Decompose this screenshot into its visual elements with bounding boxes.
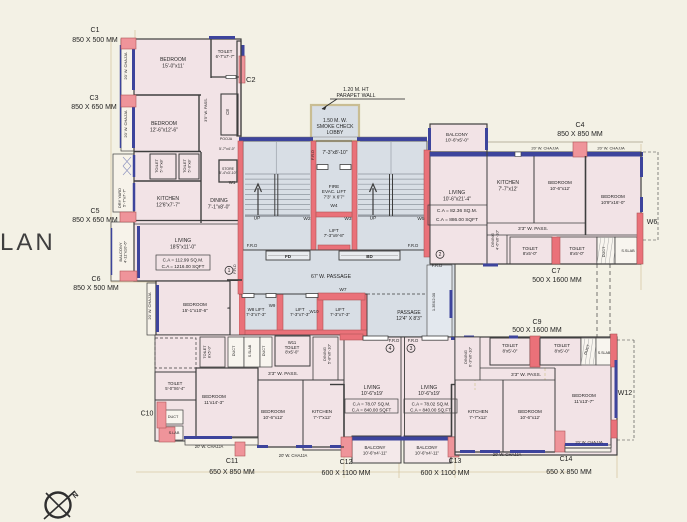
svg-text:C.A = 840.00 SQFT: C.A = 840.00 SQFT bbox=[352, 408, 392, 413]
svg-text:UP: UP bbox=[370, 216, 377, 222]
svg-text:8'x5'-0": 8'x5'-0" bbox=[523, 251, 538, 256]
svg-text:C9: C9 bbox=[533, 319, 542, 326]
svg-text:20' W. CHAJJA: 20' W. CHAJJA bbox=[123, 52, 128, 80]
svg-text:6'-7"x7'-7": 6'-7"x7'-7" bbox=[216, 54, 235, 59]
svg-text:18'5"x11'-0": 18'5"x11'-0" bbox=[170, 245, 196, 251]
svg-text:C4: C4 bbox=[576, 122, 585, 129]
svg-text:12'4" X 8'3": 12'4" X 8'3" bbox=[396, 316, 422, 322]
svg-text:W5: W5 bbox=[417, 216, 425, 222]
svg-text:F.R.D: F.R.D bbox=[233, 264, 237, 274]
svg-text:FD: FD bbox=[285, 254, 292, 259]
svg-text:BEDROOM: BEDROOM bbox=[518, 409, 542, 414]
svg-text:UP: UP bbox=[254, 216, 261, 222]
svg-text:W9: W9 bbox=[269, 303, 276, 308]
svg-text:W7: W7 bbox=[339, 287, 347, 293]
svg-text:DUCT: DUCT bbox=[232, 345, 236, 356]
svg-text:3'3" W. PASS.: 3'3" W. PASS. bbox=[511, 372, 541, 378]
svg-text:DUCT: DUCT bbox=[602, 246, 606, 257]
svg-text:S.SLAB: S.SLAB bbox=[598, 351, 611, 355]
svg-text:10'-6"x4'-11": 10'-6"x4'-11" bbox=[415, 451, 440, 456]
svg-text:12'-6"x12'-6": 12'-6"x12'-6" bbox=[150, 128, 178, 134]
svg-text:W10: W10 bbox=[309, 309, 319, 314]
svg-text:8'x5'-0": 8'x5'-0" bbox=[570, 251, 585, 256]
svg-text:5'-0"x8': 5'-0"x8' bbox=[159, 159, 164, 172]
svg-text:3'5" W. PASS.: 3'5" W. PASS. bbox=[204, 98, 208, 122]
svg-text:KITCHEN: KITCHEN bbox=[157, 196, 179, 202]
svg-text:3'3" W. PASS.: 3'3" W. PASS. bbox=[518, 226, 548, 232]
svg-text:F.R.D: F.R.D bbox=[408, 243, 418, 248]
svg-text:850 X 850 MM: 850 X 850 MM bbox=[557, 131, 603, 138]
svg-text:20' W. CHAJJA: 20' W. CHAJJA bbox=[531, 146, 559, 151]
svg-text:20' W. CHAJJA: 20' W. CHAJJA bbox=[575, 440, 603, 445]
svg-text:1.35X2.00: 1.35X2.00 bbox=[431, 292, 436, 311]
svg-text:S.SLAB: S.SLAB bbox=[621, 249, 635, 253]
svg-text:LIVING: LIVING bbox=[175, 238, 192, 244]
svg-text:11'x13'-7": 11'x13'-7" bbox=[574, 399, 594, 404]
svg-text:W2: W2 bbox=[303, 216, 311, 222]
svg-text:10'9"x16'-0": 10'9"x16'-0" bbox=[601, 200, 626, 205]
svg-text:650 X 850 MM: 650 X 850 MM bbox=[546, 469, 592, 476]
svg-text:7'-3"x7'-3": 7'-3"x7'-3" bbox=[290, 312, 310, 317]
svg-text:C11: C11 bbox=[226, 458, 238, 465]
svg-text:W6: W6 bbox=[647, 219, 658, 226]
svg-text:KITCHEN: KITCHEN bbox=[468, 409, 488, 414]
svg-text:F.R.D: F.R.D bbox=[310, 150, 315, 160]
svg-text:C2: C2 bbox=[246, 75, 256, 84]
svg-text:10'-6"x5'-0": 10'-6"x5'-0" bbox=[445, 138, 469, 143]
svg-text:DUCT: DUCT bbox=[168, 415, 179, 419]
svg-text:4'-6"x6'-10": 4'-6"x6'-10" bbox=[495, 229, 500, 250]
svg-text:5'-7"x4'-0": 5'-7"x4'-0" bbox=[219, 147, 236, 151]
svg-text:5'-8"x6'-10": 5'-8"x6'-10" bbox=[327, 343, 332, 364]
svg-text:C7: C7 bbox=[552, 268, 561, 275]
svg-text:BEDROOM: BEDROOM bbox=[601, 194, 625, 199]
svg-text:BEDROOM: BEDROOM bbox=[202, 394, 226, 399]
svg-text:7'-3"x9'-8": 7'-3"x9'-8" bbox=[324, 233, 345, 238]
svg-text:15'-0"x11': 15'-0"x11' bbox=[162, 64, 183, 70]
svg-text:6'-3"x6'-10": 6'-3"x6'-10" bbox=[468, 346, 473, 367]
svg-text:20' W. CHAJJA: 20' W. CHAJJA bbox=[123, 110, 128, 138]
svg-text:10'-6"x4'-11": 10'-6"x4'-11" bbox=[363, 451, 388, 456]
svg-text:850 X 500 MM: 850 X 500 MM bbox=[73, 285, 119, 292]
svg-text:LOBBY: LOBBY bbox=[327, 130, 344, 136]
svg-text:500 X 1600 MM: 500 X 1600 MM bbox=[512, 327, 562, 334]
svg-text:C.A = 840.00 SQ.FT: C.A = 840.00 SQ.FT bbox=[410, 408, 451, 413]
svg-text:7'-7"x12': 7'-7"x12' bbox=[313, 415, 331, 420]
svg-text:C6: C6 bbox=[92, 276, 101, 283]
svg-text:5'-0"X6'-4": 5'-0"X6'-4" bbox=[165, 386, 185, 391]
svg-text:12'6"x7'-7": 12'6"x7'-7" bbox=[156, 203, 180, 209]
svg-text:8'x5'-0": 8'x5'-0" bbox=[555, 349, 570, 354]
svg-text:BEDROOM: BEDROOM bbox=[548, 180, 572, 185]
svg-text:F.R.D: F.R.D bbox=[247, 243, 257, 248]
svg-text:PARAPET WALL: PARAPET WALL bbox=[336, 93, 375, 99]
svg-text:10'-6"x19': 10'-6"x19' bbox=[418, 391, 440, 397]
svg-text:DUCT: DUCT bbox=[262, 345, 266, 356]
svg-text:20' W. CHAJJA: 20' W. CHAJJA bbox=[279, 453, 308, 458]
svg-text:4: 4 bbox=[389, 346, 392, 352]
svg-text:KITCHEN: KITCHEN bbox=[497, 180, 519, 186]
svg-text:7'-7"x12': 7'-7"x12' bbox=[469, 415, 487, 420]
svg-text:8'x5'-0": 8'x5'-0" bbox=[207, 345, 211, 358]
svg-text:BEDROOM: BEDROOM bbox=[261, 409, 285, 414]
svg-text:C.A = 1216.00 SQFT: C.A = 1216.00 SQFT bbox=[162, 264, 205, 269]
svg-text:W4: W4 bbox=[330, 203, 338, 209]
svg-text:BALCONY: BALCONY bbox=[417, 445, 438, 450]
svg-text:20' W. CHAJJA: 20' W. CHAJJA bbox=[597, 146, 625, 151]
svg-text:7'-3"x8'-10": 7'-3"x8'-10" bbox=[322, 150, 347, 156]
svg-text:650 X 850 MM: 650 X 850 MM bbox=[209, 469, 255, 476]
svg-text:LAN: LAN bbox=[0, 229, 56, 256]
svg-text:7'-3"x7'-3": 7'-3"x7'-3" bbox=[330, 312, 350, 317]
svg-text:850 X 650 MM: 850 X 650 MM bbox=[72, 217, 118, 224]
svg-text:11'x14'-3": 11'x14'-3" bbox=[204, 400, 224, 405]
svg-text:5'-7"x7'-7": 5'-7"x7'-7" bbox=[122, 188, 127, 207]
svg-text:C1: C1 bbox=[91, 27, 100, 34]
svg-text:1: 1 bbox=[228, 268, 231, 274]
svg-text:15'-1"x10'-6": 15'-1"x10'-6" bbox=[182, 308, 208, 313]
svg-text:C.A = 886.00 SQFT: C.A = 886.00 SQFT bbox=[436, 217, 478, 223]
svg-text:2: 2 bbox=[439, 252, 442, 258]
svg-text:BD: BD bbox=[366, 254, 373, 259]
svg-text:10'-6"x12': 10'-6"x12' bbox=[520, 415, 540, 420]
svg-text:3: 3 bbox=[410, 346, 413, 352]
svg-text:C14: C14 bbox=[560, 456, 573, 463]
svg-text:C8: C8 bbox=[225, 109, 230, 115]
svg-text:10'-6"x21'-4": 10'-6"x21'-4" bbox=[443, 197, 471, 203]
svg-text:10'-6"x12': 10'-6"x12' bbox=[263, 415, 283, 420]
svg-text:B: B bbox=[226, 306, 231, 309]
svg-text:C.A = 112.99 SQ.M.: C.A = 112.99 SQ.M. bbox=[163, 258, 204, 263]
svg-text:7'-3"x7'-3": 7'-3"x7'-3" bbox=[246, 312, 266, 317]
svg-text:5'-0"x8': 5'-0"x8' bbox=[187, 159, 192, 172]
svg-text:10'-6"x12': 10'-6"x12' bbox=[550, 186, 570, 191]
svg-text:F.R.D: F.R.D bbox=[408, 338, 418, 343]
svg-text:TOILET: TOILET bbox=[554, 343, 570, 348]
svg-text:C.A = 78.07 SQ.M.: C.A = 78.07 SQ.M. bbox=[353, 402, 391, 407]
svg-text:C12: C12 bbox=[340, 459, 353, 466]
svg-text:F.R.D: F.R.D bbox=[432, 263, 442, 268]
svg-text:LIVING: LIVING bbox=[449, 190, 466, 196]
svg-text:C.A = 82.36 SQ.M.: C.A = 82.36 SQ.M. bbox=[437, 208, 477, 214]
svg-text:20' W. CHAJJA: 20' W. CHAJJA bbox=[493, 452, 522, 457]
svg-text:5'-4"x3'-10": 5'-4"x3'-10" bbox=[219, 171, 237, 175]
svg-text:BALCONY: BALCONY bbox=[365, 445, 386, 450]
svg-text:F.R.D: F.R.D bbox=[389, 338, 399, 343]
svg-text:KITCHEN: KITCHEN bbox=[312, 409, 332, 414]
svg-text:TOILET: TOILET bbox=[502, 343, 518, 348]
svg-text:67' W. PASSAGE: 67' W. PASSAGE bbox=[311, 274, 352, 280]
svg-text:W12: W12 bbox=[618, 390, 633, 397]
svg-text:20' W. CHAJJA: 20' W. CHAJJA bbox=[147, 292, 152, 320]
svg-text:C.A = 78.02 SQ.M.: C.A = 78.02 SQ.M. bbox=[412, 402, 450, 407]
svg-text:8'x5'-0": 8'x5'-0" bbox=[503, 349, 518, 354]
svg-text:20' W. CHAJJA: 20' W. CHAJJA bbox=[195, 444, 224, 449]
svg-text:BEDROOM: BEDROOM bbox=[183, 302, 207, 307]
svg-text:7'-7"x12': 7'-7"x12' bbox=[499, 187, 518, 193]
svg-text:600 X 1100 MM: 600 X 1100 MM bbox=[322, 470, 371, 477]
svg-text:W1: W1 bbox=[229, 180, 236, 185]
svg-text:BEDROOM: BEDROOM bbox=[160, 57, 186, 63]
svg-text:7'3" X 6'7": 7'3" X 6'7" bbox=[324, 194, 345, 199]
svg-text:7'-1"x8'-0": 7'-1"x8'-0" bbox=[208, 205, 231, 211]
svg-text:S.LAB: S.LAB bbox=[169, 431, 180, 435]
svg-text:C13: C13 bbox=[449, 458, 462, 465]
svg-text:S.SLAB: S.SLAB bbox=[248, 344, 252, 357]
svg-text:8'x5'-0": 8'x5'-0" bbox=[285, 350, 299, 355]
svg-text:C5: C5 bbox=[91, 208, 100, 215]
svg-text:4'-11"x10'-6": 4'-11"x10'-6" bbox=[123, 240, 128, 263]
svg-text:3'3" W. PASS.: 3'3" W. PASS. bbox=[268, 371, 298, 377]
svg-text:600 X 1100 MM: 600 X 1100 MM bbox=[421, 470, 470, 477]
svg-text:BEDROOM: BEDROOM bbox=[151, 121, 177, 127]
svg-text:850 X 650 MM: 850 X 650 MM bbox=[71, 104, 117, 111]
svg-text:TOILET: TOILET bbox=[203, 345, 207, 359]
svg-text:10'-6"x19': 10'-6"x19' bbox=[361, 391, 383, 397]
svg-text:POOJA: POOJA bbox=[220, 137, 233, 141]
svg-text:DINING: DINING bbox=[210, 198, 228, 204]
svg-text:W3: W3 bbox=[344, 216, 352, 222]
svg-text:C10: C10 bbox=[141, 411, 154, 418]
svg-text:BALCONY: BALCONY bbox=[446, 132, 468, 137]
svg-text:500 X 1600 MM: 500 X 1600 MM bbox=[532, 277, 582, 284]
svg-text:850 X 500 MM: 850 X 500 MM bbox=[72, 37, 118, 44]
svg-text:C3: C3 bbox=[90, 95, 99, 102]
svg-text:BEDROOM: BEDROOM bbox=[572, 393, 596, 398]
